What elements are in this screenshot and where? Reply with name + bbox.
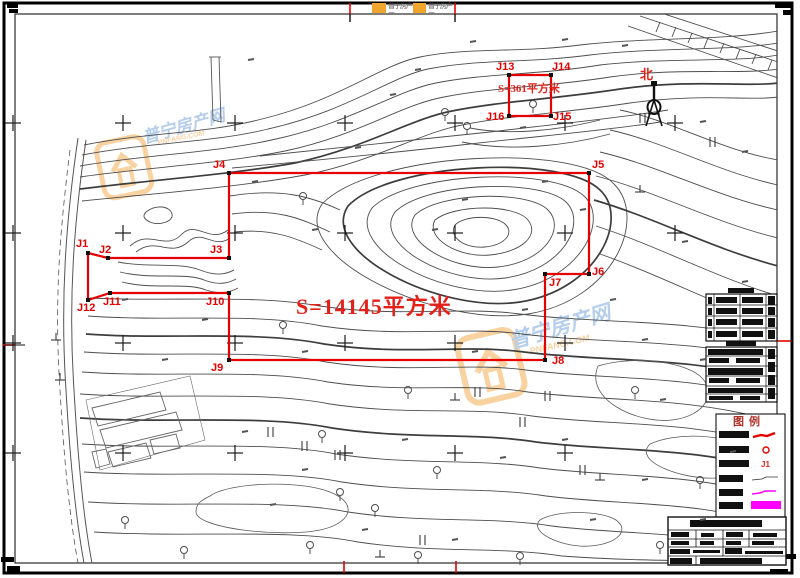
- vertex-label-J2: J2: [99, 245, 111, 256]
- vertex-label-J1: J1: [76, 239, 88, 250]
- vertex-marker-J14: [549, 73, 553, 77]
- main-area-label: S=14145平方米: [296, 296, 452, 318]
- legend-box: [716, 414, 785, 517]
- vertex-label-J5: J5: [592, 160, 604, 171]
- vertex-label-J3: J3: [210, 245, 222, 256]
- parcel-boundary-main: [88, 173, 589, 360]
- fence-lines: [209, 57, 221, 122]
- vertex-marker-J16: [507, 114, 511, 118]
- vertex-marker-J10: [227, 291, 231, 295]
- coordinate-table-lower: [706, 341, 777, 402]
- north-label: 北: [640, 68, 653, 81]
- vertex-marker-J5: [587, 171, 591, 175]
- vertex-marker-J9: [227, 358, 231, 362]
- legend-title: 图例: [733, 417, 765, 428]
- vertex-label-J6: J6: [592, 267, 604, 278]
- vertex-label-J10: J10: [206, 297, 224, 308]
- map-canvas: [0, 0, 800, 578]
- logo-strip-text: 普宁房产网: [388, 2, 414, 13]
- vertex-marker-J8: [543, 358, 547, 362]
- vertex-label-J9: J9: [211, 363, 223, 374]
- small-area-label: S=361平方米: [498, 84, 560, 95]
- vertex-marker-J4: [227, 171, 231, 175]
- vertex-marker-J11: [108, 291, 112, 295]
- vertex-marker-J2: [106, 256, 110, 260]
- vertex-label-J13: J13: [496, 62, 514, 73]
- vertex-marker-J6: [587, 272, 591, 276]
- building-outlines: [86, 376, 205, 470]
- vertex-label-J4: J4: [213, 160, 225, 171]
- vertex-label-J16: J16: [486, 112, 504, 123]
- vertex-marker-J13: [507, 73, 511, 77]
- legend-point-sample: J1: [761, 461, 770, 469]
- road-lines: [58, 138, 92, 563]
- vertex-label-J11: J11: [103, 297, 121, 308]
- vertex-marker-J3: [227, 256, 231, 260]
- parcel-boundary-small: [509, 75, 551, 116]
- vertex-label-J14: J14: [552, 62, 570, 73]
- vertex-label-J7: J7: [549, 278, 561, 289]
- vertex-marker-J7: [543, 272, 547, 276]
- drawing-sheet: 普宁房产网 PNFANG.COM 普宁房产网 PNFANG.COM: [0, 0, 800, 578]
- title-block: [668, 517, 786, 565]
- vertex-label-J8: J8: [552, 356, 564, 367]
- logo-strip-text: 普宁房产网: [428, 2, 454, 13]
- vertex-label-J12: J12: [77, 303, 95, 314]
- map-symbols: [51, 101, 715, 566]
- vertex-label-J15: J15: [553, 112, 571, 123]
- coordinate-table-upper: [706, 288, 777, 341]
- vertex-marker-J1: [86, 251, 90, 255]
